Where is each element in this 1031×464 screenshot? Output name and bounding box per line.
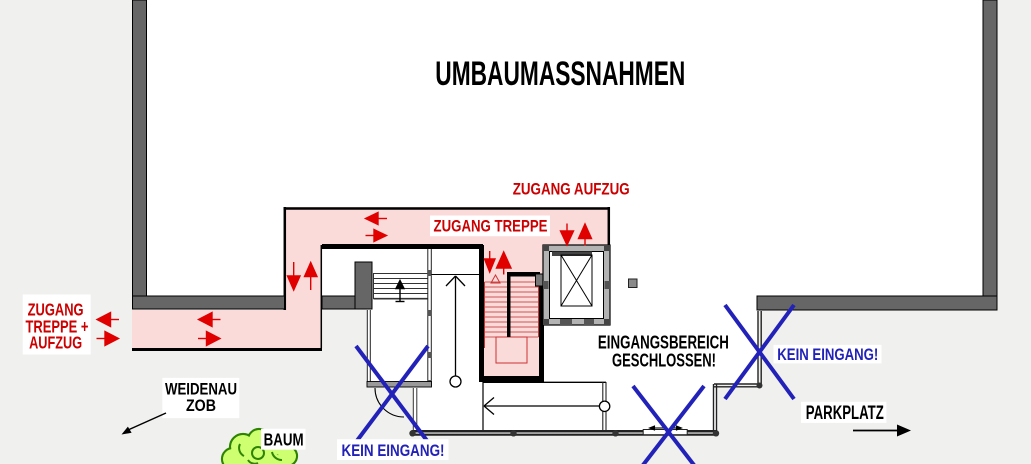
svg-text:BAUM: BAUM <box>264 430 304 450</box>
svg-text:AUFZUG: AUFZUG <box>29 332 82 352</box>
svg-text:ZOB: ZOB <box>186 397 216 415</box>
svg-text:GESCHLOSSEN!: GESCHLOSSEN! <box>612 351 716 371</box>
svg-text:EINGANGSBEREICH: EINGANGSBEREICH <box>598 333 729 353</box>
svg-text:PARKPLATZ: PARKPLATZ <box>806 402 884 424</box>
svg-text:ZUGANG TREPPE: ZUGANG TREPPE <box>434 216 548 235</box>
svg-text:KEIN EINGANG!: KEIN EINGANG! <box>342 441 445 460</box>
svg-text:UMBAUMASSNAHMEN: UMBAUMASSNAHMEN <box>435 55 685 93</box>
svg-text:ZUGANG AUFZUG: ZUGANG AUFZUG <box>513 181 630 199</box>
svg-text:KEIN EINGANG!: KEIN EINGANG! <box>777 345 878 364</box>
svg-text:WEIDENAU: WEIDENAU <box>165 381 237 399</box>
